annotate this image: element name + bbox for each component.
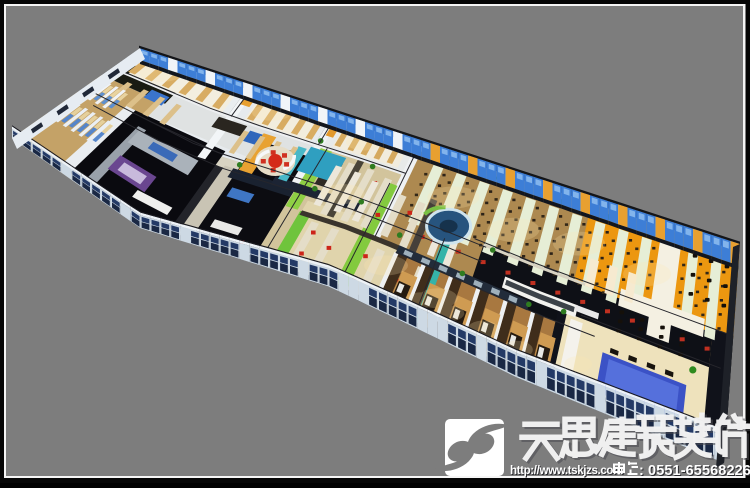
svg-text:http://www.tskjzs.com: http://www.tskjzs.com bbox=[510, 465, 623, 477]
svg-text:: 0551-65568226: : 0551-65568226 bbox=[639, 463, 750, 479]
